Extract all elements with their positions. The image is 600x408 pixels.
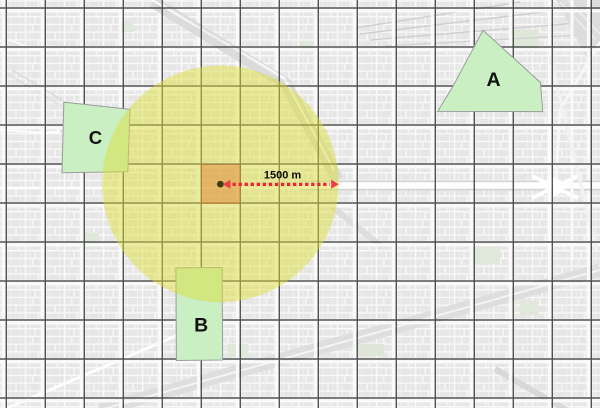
svg-text:A: A — [486, 69, 500, 91]
svg-text:B: B — [194, 314, 208, 336]
svg-text:C: C — [89, 127, 102, 148]
svg-text:1500 m: 1500 m — [264, 170, 302, 182]
